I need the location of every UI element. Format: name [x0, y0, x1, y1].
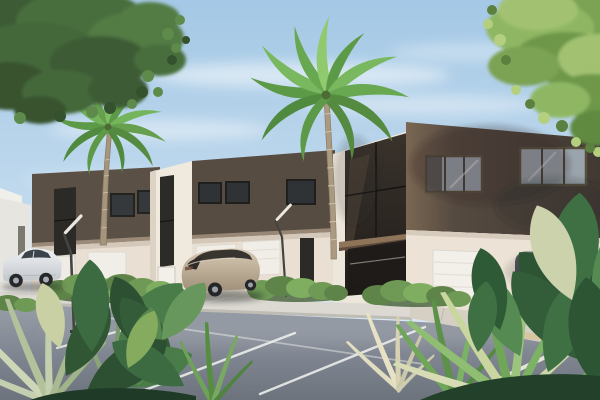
upper-window	[287, 180, 315, 204]
upper-window	[226, 182, 249, 203]
entry-glass	[54, 187, 76, 256]
upper-window	[111, 194, 134, 216]
upper-window	[199, 183, 221, 203]
scene-rendering	[0, 0, 600, 400]
rendering-image	[0, 0, 600, 400]
